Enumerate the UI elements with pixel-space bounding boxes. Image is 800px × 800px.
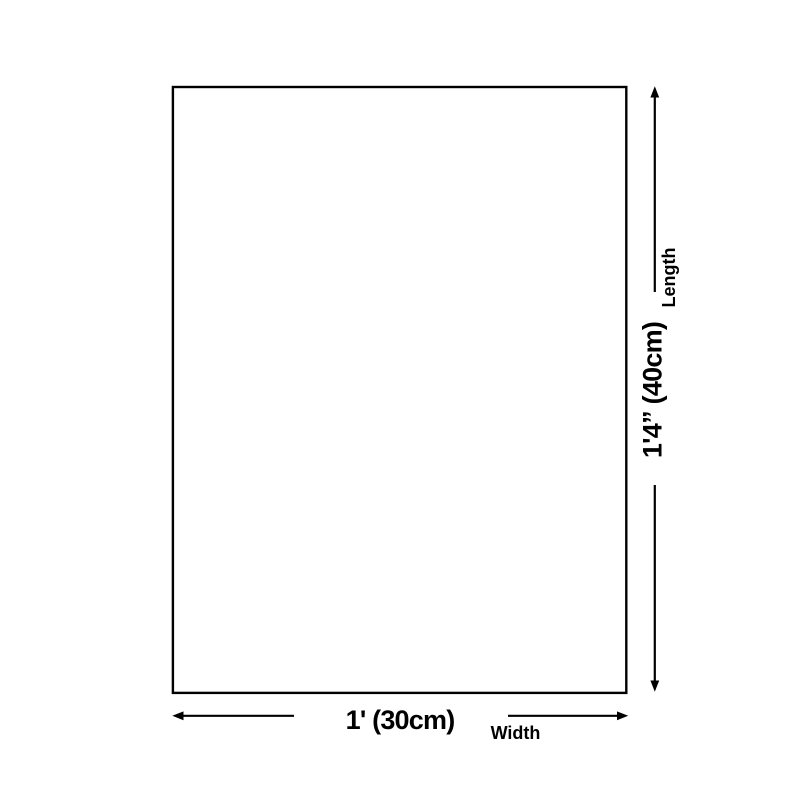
svg-text:1' (30cm): 1' (30cm) — [346, 705, 455, 735]
svg-text:1'4” (40cm): 1'4” (40cm) — [638, 322, 668, 458]
svg-text:Length: Length — [659, 248, 679, 308]
svg-text:Width: Width — [491, 723, 541, 743]
